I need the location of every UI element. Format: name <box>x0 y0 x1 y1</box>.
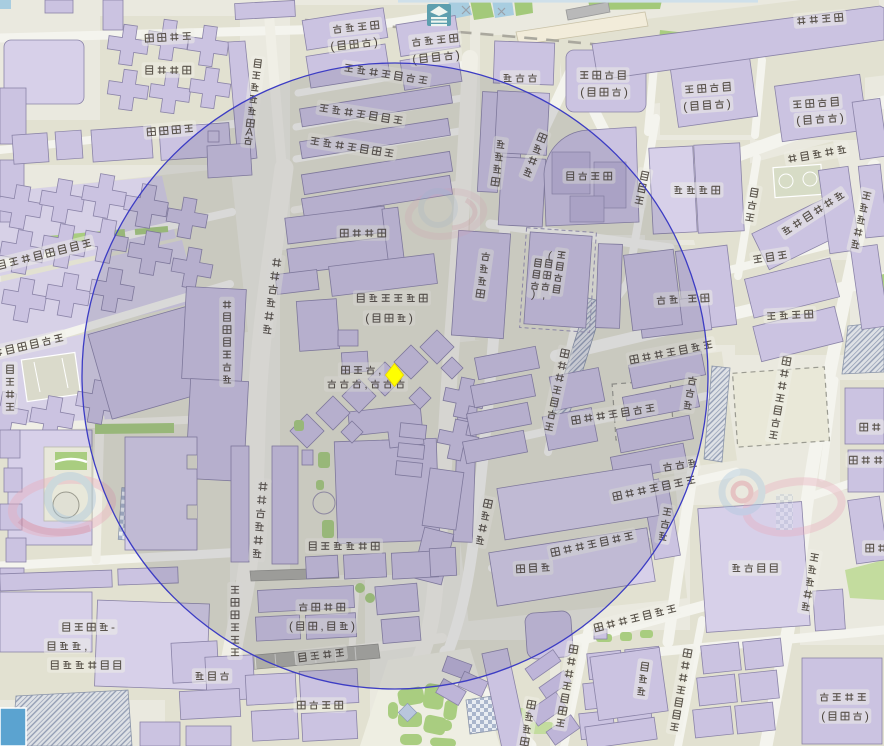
svg-text:(: ( <box>580 85 584 99</box>
svg-text:-: - <box>111 620 115 634</box>
svg-text:): ) <box>865 709 869 723</box>
svg-text:(: ( <box>821 709 825 723</box>
svg-text:,: , <box>84 639 87 653</box>
svg-text:): ) <box>624 85 628 99</box>
